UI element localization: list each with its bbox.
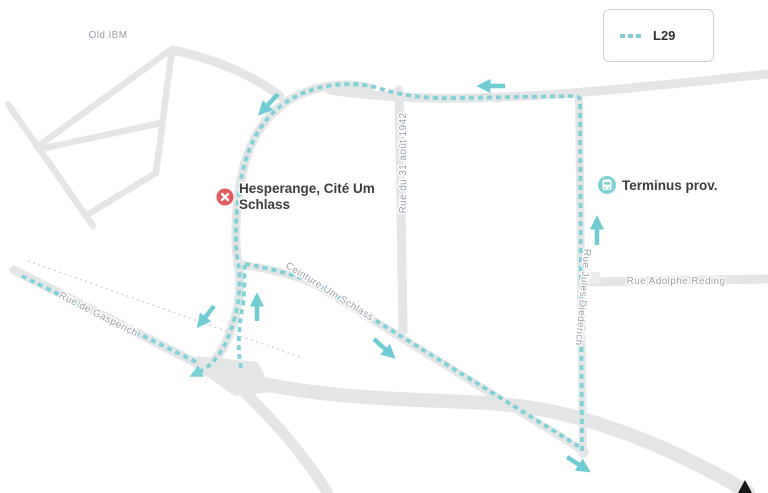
map-canvas: Old IBM Rue du 31 août 1942 Rue Jules Di… [0,0,768,493]
street-label-old-ibm: Old IBM [89,30,128,41]
map-svg: Old IBM Rue du 31 août 1942 Rue Jules Di… [0,0,768,493]
closed-stop-marker[interactable] [217,189,234,206]
terminus-marker[interactable] [598,176,616,194]
bus-icon [603,180,612,191]
legend-route-label: L29 [653,28,675,43]
street-label-rue-adolphe-reding: Rue Adolphe Reding [627,276,726,287]
closed-stop-label-line2: Schlass [239,197,290,212]
street-label-rue-31-aout: Rue du 31 août 1942 [398,112,409,213]
arrow-downleft-street [204,306,214,319]
arrow-southeast-junction [567,457,581,466]
arrow-southeast-ceinture [374,339,387,351]
street-label-rue-de-gasperich: Rue de Gasperich [57,290,140,339]
terminus-label: Terminus prov. [622,178,718,193]
closed-stop-label-line1: Hesperange, Cité Um [239,181,375,196]
street-label-ceinture-um-schlass: Ceinture Um Schlass [283,260,375,323]
route-line-swatch-icon [620,34,644,38]
street-label-rue-jules-diederich: Rue Jules Diederich [573,248,592,346]
legend: L29 [603,9,714,62]
